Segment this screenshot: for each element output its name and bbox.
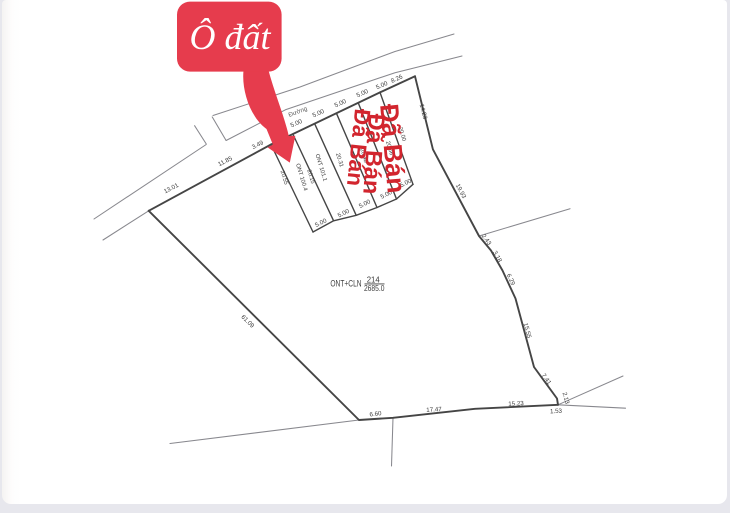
svg-text:ONT+CLN: ONT+CLN <box>330 278 361 288</box>
svg-text:13.01: 13.01 <box>163 182 180 196</box>
svg-text:Đường: Đường <box>288 105 309 119</box>
svg-text:ONT 101.1: ONT 101.1 <box>314 153 328 182</box>
svg-text:5.00: 5.00 <box>333 98 347 110</box>
svg-text:20.55: 20.55 <box>279 170 289 186</box>
svg-text:5.00: 5.00 <box>289 118 303 130</box>
svg-text:15.23: 15.23 <box>508 400 524 408</box>
svg-text:2685.0: 2685.0 <box>364 283 385 293</box>
svg-text:5.00: 5.00 <box>358 198 372 210</box>
svg-text:17.47: 17.47 <box>426 406 442 414</box>
svg-text:1.53: 1.53 <box>550 408 563 416</box>
svg-text:14.23: 14.23 <box>418 103 429 120</box>
svg-text:Ô đất: Ô đất <box>190 17 272 57</box>
svg-text:ONT 100.4: ONT 100.4 <box>294 163 308 193</box>
svg-text:5.00: 5.00 <box>311 108 325 120</box>
svg-text:6.60: 6.60 <box>369 410 382 418</box>
svg-text:3.18: 3.18 <box>491 250 503 264</box>
svg-text:20.15: 20.15 <box>305 169 315 185</box>
svg-text:7.41: 7.41 <box>540 372 553 386</box>
svg-text:20.31: 20.31 <box>334 152 344 168</box>
